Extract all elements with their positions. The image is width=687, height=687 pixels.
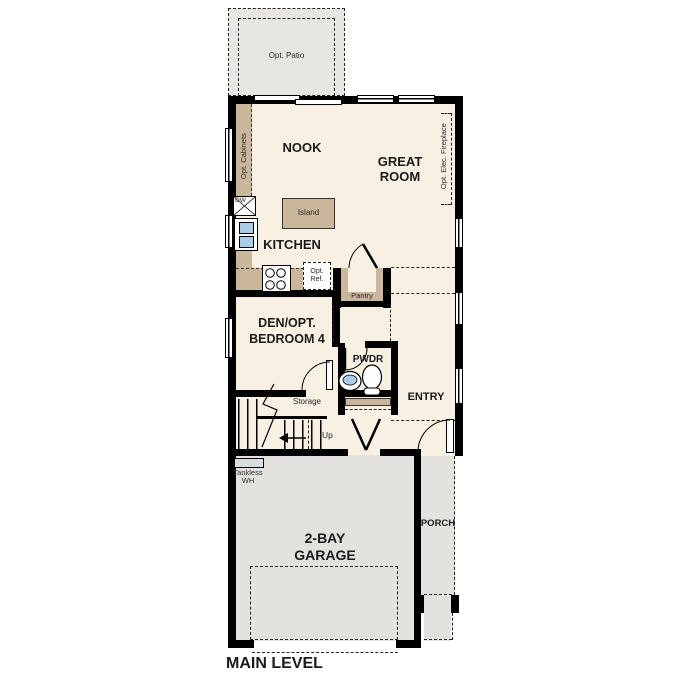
garage-entry-door [352, 419, 380, 450]
up-label: Up [322, 431, 344, 442]
plan-title: MAIN LEVEL [226, 655, 386, 673]
great-room-label-2: ROOM [365, 170, 435, 183]
tankless-label-2: WH [226, 477, 270, 485]
kitchen-label: KITCHEN [258, 238, 326, 252]
dishwasher-label: DW [233, 197, 255, 205]
stair-break-line [262, 384, 277, 447]
storage-label: Storage [285, 398, 329, 408]
garage-label-1: 2-BAY [275, 531, 375, 546]
burner-1 [266, 269, 275, 278]
tankless-wh-unit [234, 458, 264, 468]
symbols-overlay [0, 0, 687, 687]
pantry-door-arc [349, 244, 363, 268]
front-door-arc [418, 420, 450, 452]
toilet-bowl [363, 365, 382, 389]
great-room-label-1: GREAT [365, 155, 435, 168]
den-label-1: DEN/OPT. [232, 317, 342, 331]
den-label-2: BEDROOM 4 [232, 333, 342, 347]
toilet-base [364, 388, 380, 395]
pwdr-sink-basin [343, 375, 357, 385]
burner-3 [266, 281, 275, 290]
floor-plan: Opt. Patio Opt. Cabinets Opt. [0, 0, 687, 687]
pwdr-label: PWDR [346, 354, 390, 365]
burner-2 [277, 269, 286, 278]
den-door-arc [302, 362, 330, 390]
pantry-door-leaf [363, 244, 377, 268]
entry-label: ENTRY [404, 391, 448, 403]
burner-4 [277, 281, 286, 290]
garage-label-2: GARAGE [275, 548, 375, 563]
up-arrow-head [279, 433, 288, 443]
nook-label: NOOK [262, 141, 342, 155]
porch-label: PORCH [419, 519, 457, 530]
